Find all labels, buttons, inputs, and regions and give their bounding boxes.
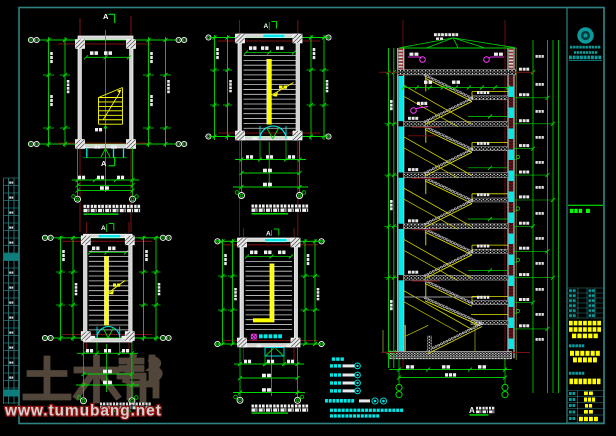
svg-text:A: A bbox=[101, 159, 107, 168]
svg-text:A: A bbox=[266, 231, 271, 238]
svg-text:A: A bbox=[264, 23, 269, 30]
svg-text:www.tumubang.net: www.tumubang.net bbox=[4, 403, 162, 420]
svg-text:A: A bbox=[101, 225, 106, 232]
svg-text:A: A bbox=[103, 12, 109, 21]
svg-text:A: A bbox=[469, 406, 475, 415]
